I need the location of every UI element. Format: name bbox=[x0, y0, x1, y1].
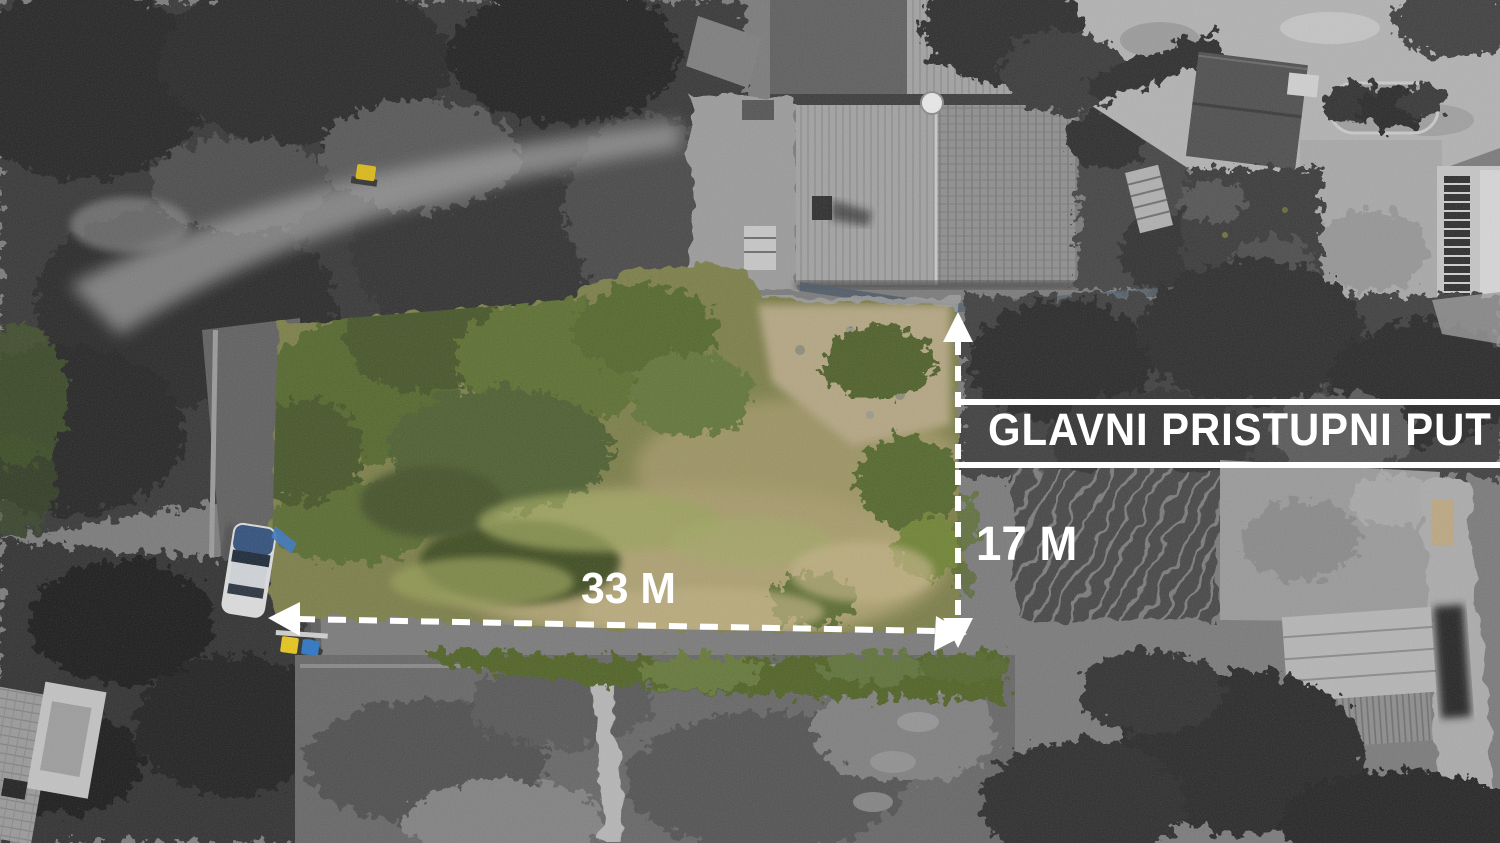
width-dimension-label: 33 M bbox=[581, 567, 676, 611]
aerial-photo-scene: GLAVNI PRISTUPNI PUT 17 M 33 M bbox=[0, 0, 1500, 843]
depth-dimension-label: 17 M bbox=[976, 521, 1077, 569]
road-label: GLAVNI PRISTUPNI PUT bbox=[988, 407, 1492, 452]
road-label-bottom-rule bbox=[955, 462, 1500, 468]
